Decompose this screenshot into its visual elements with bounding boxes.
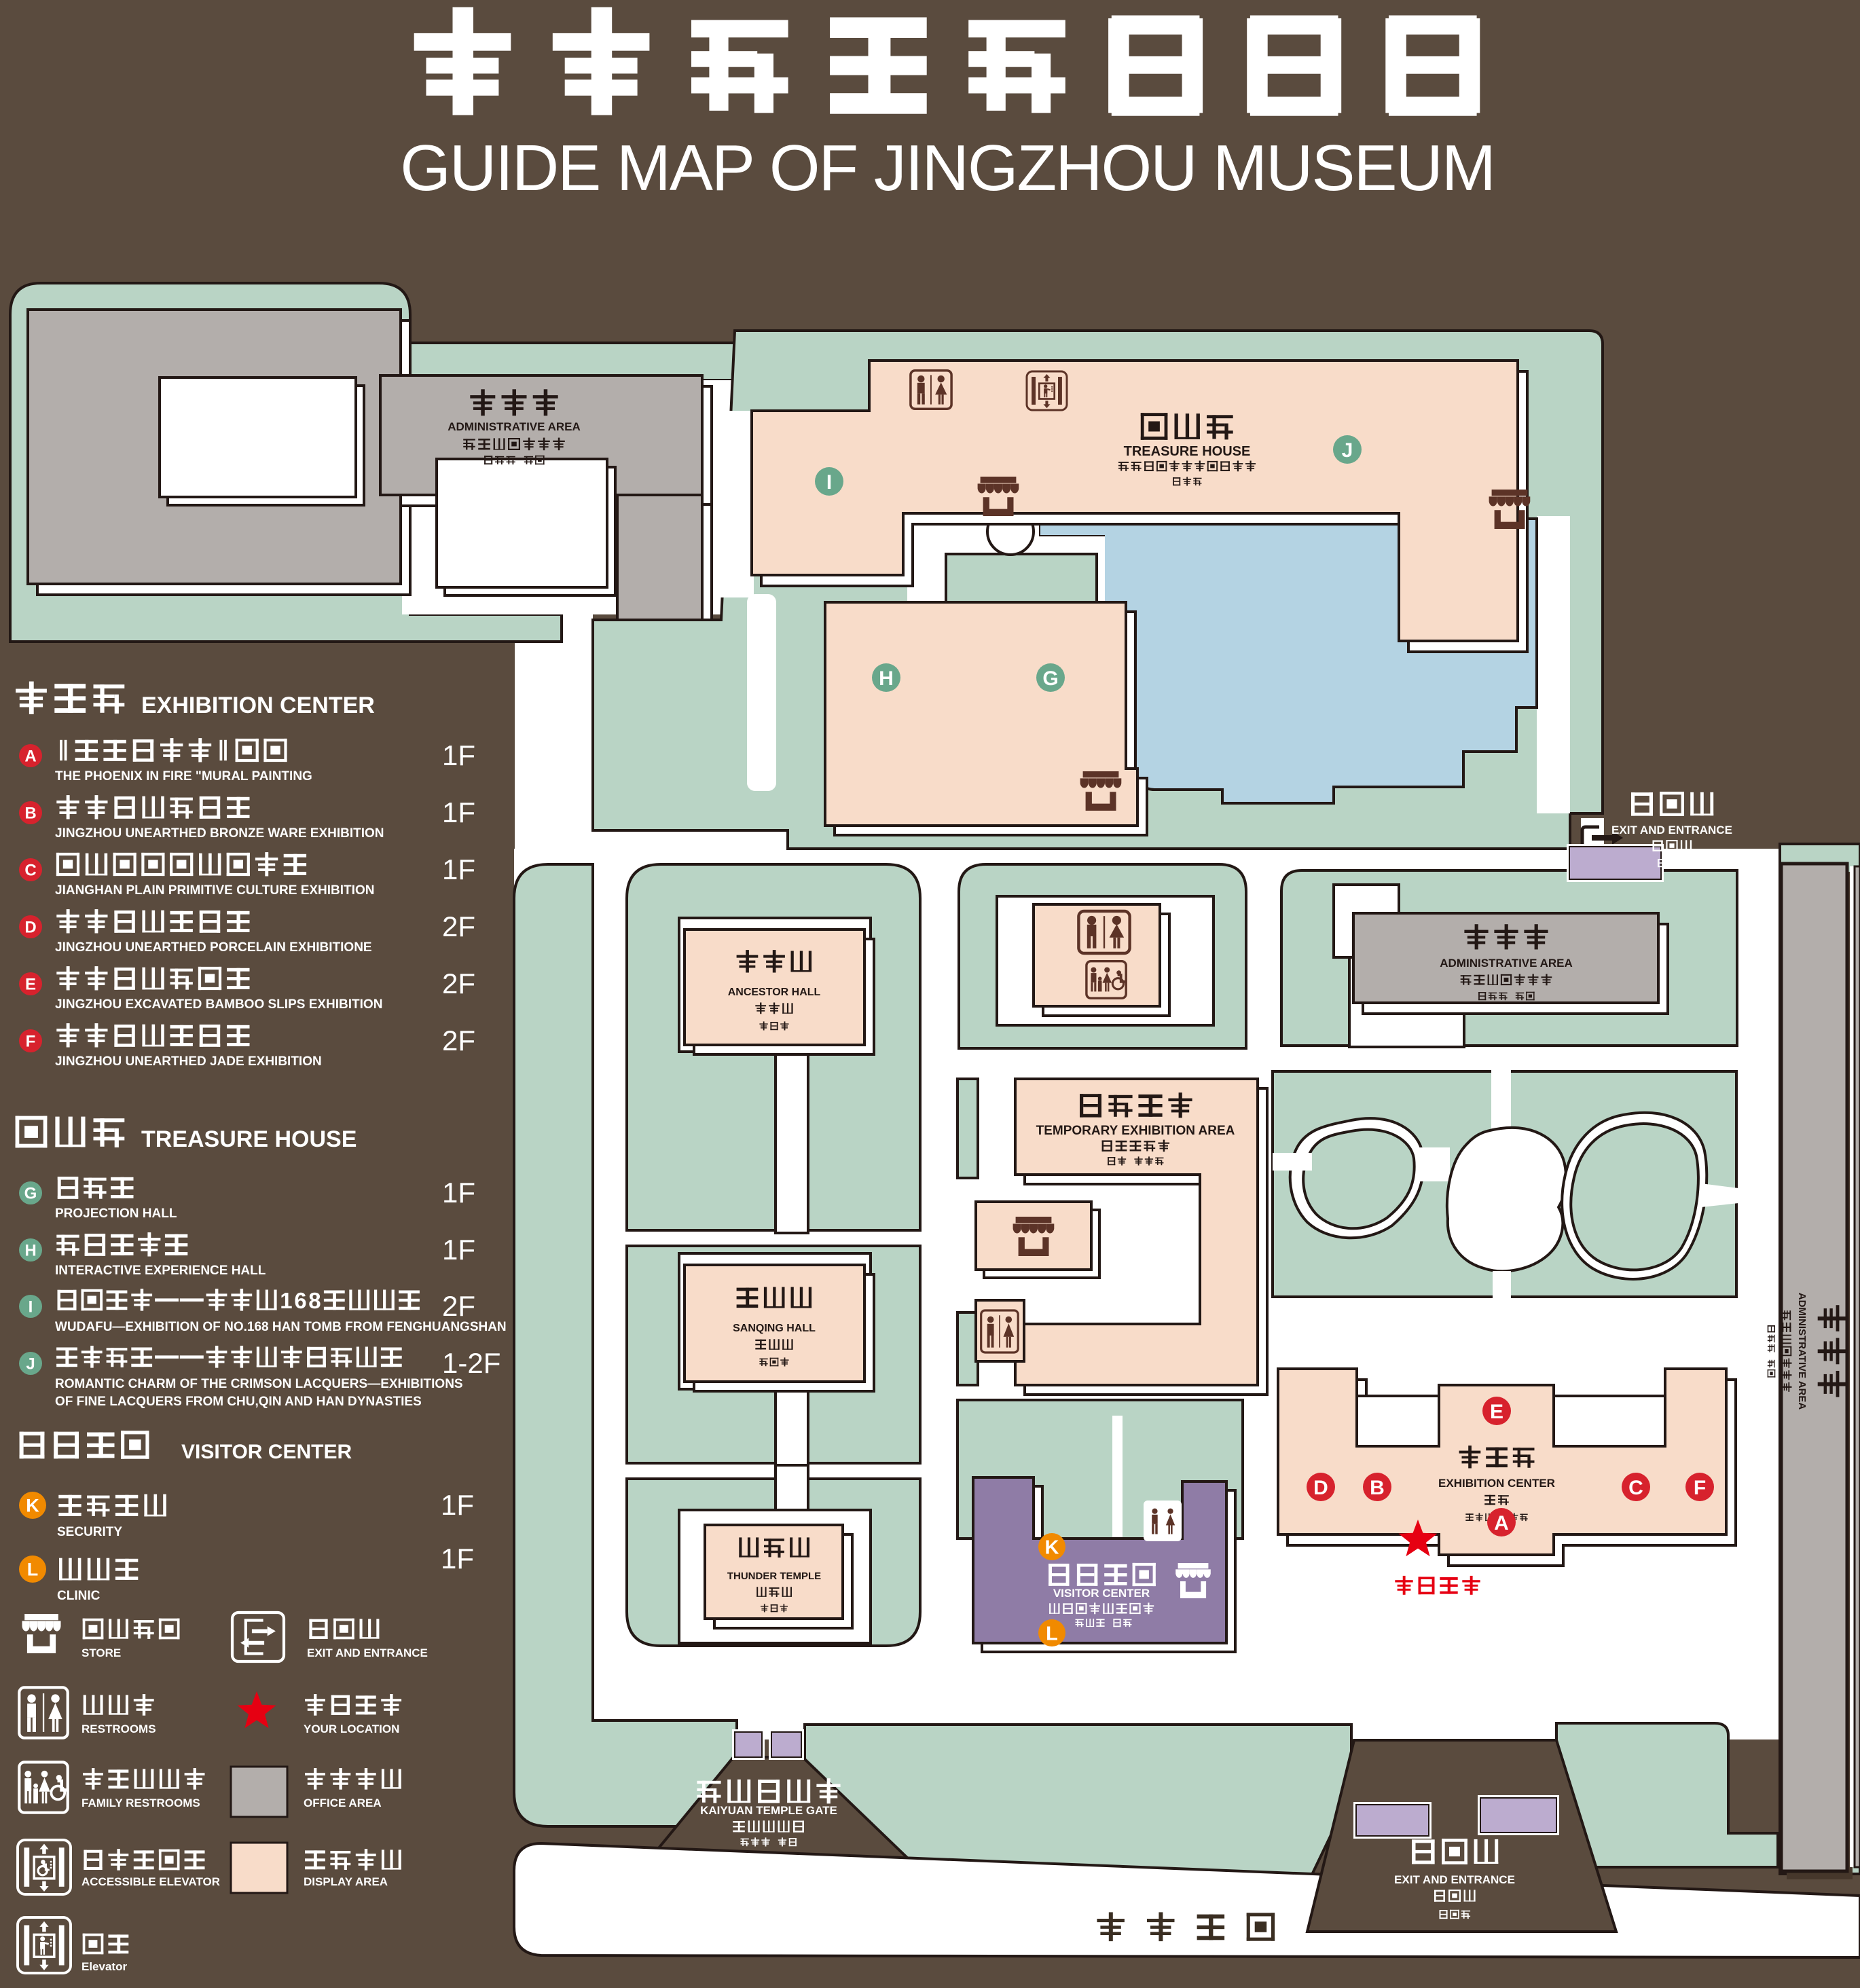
svg-text:ANCESTOR HALL: ANCESTOR HALL [728,987,821,998]
svg-text:1F: 1F [442,1234,475,1266]
svg-text:K: K [26,1496,39,1516]
svg-text:SECURITY: SECURITY [57,1525,122,1539]
svg-text:OF FINE LACQUERS FROM CHU,QIN: OF FINE LACQUERS FROM CHU,QIN AND HAN DY… [55,1395,422,1409]
svg-text:1F: 1F [442,739,475,771]
svg-text:TREASURE HOUSE: TREASURE HOUSE [1124,444,1251,459]
svg-text:2F: 2F [442,1290,475,1322]
svg-text:L: L [27,1560,39,1580]
svg-text:SANQING HALL: SANQING HALL [733,1323,816,1334]
svg-text:2F: 2F [442,968,475,999]
svg-text:ADMINISTRATIVE AREA: ADMINISTRATIVE AREA [448,420,581,433]
svg-text:ACCESSIBLE ELEVATOR: ACCESSIBLE ELEVATOR [81,1875,220,1888]
svg-text:1F: 1F [442,796,475,828]
svg-text:OFFICE AREA: OFFICE AREA [304,1797,382,1809]
svg-text:1F: 1F [442,1177,475,1209]
svg-text:ADMINISTRATIVE AREA: ADMINISTRATIVE AREA [1440,957,1573,970]
svg-text:8: 8 [308,1288,321,1313]
svg-text:JINGZHOU EXCAVATED BAMBOO SLIP: JINGZHOU EXCAVATED BAMBOO SLIPS EXHIBITI… [55,997,382,1012]
svg-text:JINGZHOU UNEARTHED JADE EXHIBI: JINGZHOU UNEARTHED JADE EXHIBITION [55,1054,322,1069]
svg-text:D: D [1313,1477,1328,1499]
svg-text:E: E [25,976,36,994]
svg-text:B: B [1370,1477,1385,1499]
svg-text:C: C [24,862,36,880]
svg-text:1F: 1F [441,1543,474,1575]
svg-text:VISITOR CENTER: VISITOR CENTER [181,1441,352,1463]
svg-text:1F: 1F [441,1489,474,1521]
svg-text:F: F [26,1033,36,1051]
svg-text:E: E [1490,1401,1503,1423]
svg-text:EXIT AND ENTRANCE: EXIT AND ENTRANCE [1394,1873,1515,1886]
svg-text:DISPLAY AREA: DISPLAY AREA [304,1875,388,1888]
svg-text:A: A [1494,1512,1509,1534]
svg-text:I: I [826,471,832,494]
svg-text:JINGZHOU UNEARTHED BRONZE WARE: JINGZHOU UNEARTHED BRONZE WARE EXHIBITIO… [55,826,384,841]
svg-text:J: J [26,1355,35,1374]
svg-text:C: C [1628,1477,1643,1499]
svg-text:G: G [24,1185,37,1203]
svg-text:KAIYUAN TEMPLE GATE: KAIYUAN TEMPLE GATE [700,1804,837,1817]
svg-text:ROMANTIC CHARM OF THE CRIMSON: ROMANTIC CHARM OF THE CRIMSON LACQUERS—E… [55,1377,463,1391]
svg-text:JIANGHAN PLAIN PRIMITIVE CULTU: JIANGHAN PLAIN PRIMITIVE CULTURE EXHIBIT… [55,883,374,898]
svg-text:K: K [1045,1536,1059,1558]
svg-text:L: L [1046,1623,1058,1644]
svg-text:CLINIC: CLINIC [57,1589,101,1603]
svg-text:EXIT AND ENTRANCE: EXIT AND ENTRANCE [1611,824,1732,836]
svg-text:EXIT AND ENTRANCE: EXIT AND ENTRANCE [307,1646,428,1659]
svg-text:TREASURE HOUSE: TREASURE HOUSE [141,1126,357,1152]
svg-text:YOUR LOCATION: YOUR LOCATION [304,1723,399,1735]
svg-text:VISITOR CENTER: VISITOR CENTER [1053,1587,1150,1600]
svg-text:JINGZHOU UNEARTHED PORCELAIN E: JINGZHOU UNEARTHED PORCELAIN EXHIBITIONE [55,940,372,955]
svg-text:INTERACTIVE EXPERIENCE HALL: INTERACTIVE EXPERIENCE HALL [55,1264,266,1278]
svg-text:G: G [1042,667,1058,690]
svg-text:J: J [1342,439,1353,462]
svg-text:PROJECTION HALL: PROJECTION HALL [55,1207,177,1221]
svg-text:Elevator: Elevator [81,1960,127,1973]
svg-text:A: A [24,748,36,766]
svg-text:FAMILY RESTROOMS: FAMILY RESTROOMS [81,1797,200,1809]
svg-text:I: I [29,1298,33,1317]
svg-text:H: H [879,667,894,690]
svg-text:WUDAFU—EXHIBITION OF NO.168 HA: WUDAFU—EXHIBITION OF NO.168 HAN TOMB FRO… [55,1320,507,1334]
svg-text:THUNDER TEMPLE: THUNDER TEMPLE [727,1570,821,1582]
svg-text:D: D [24,919,36,937]
svg-text:TEMPORARY EXHIBITION AREA: TEMPORARY EXHIBITION AREA [1036,1124,1235,1138]
svg-text:STORE: STORE [81,1646,121,1659]
svg-text:2F: 2F [442,1025,475,1056]
svg-text:B: B [24,805,36,823]
svg-text:1F: 1F [442,853,475,885]
svg-text:RESTROOMS: RESTROOMS [81,1723,156,1735]
svg-text:H: H [24,1242,36,1260]
svg-text:2F: 2F [442,910,475,942]
svg-text:GUIDE MAP OF JINGZHOU MUSEUM: GUIDE MAP OF JINGZHOU MUSEUM [400,132,1495,204]
svg-text:ADMINISTRATIVE AREA: ADMINISTRATIVE AREA [1796,1293,1808,1410]
svg-text:EXHIBITION CENTER: EXHIBITION CENTER [1438,1477,1555,1490]
svg-text:EXHIBITION CENTER: EXHIBITION CENTER [141,693,375,718]
svg-text:F: F [1694,1477,1706,1499]
svg-text:6: 6 [294,1288,306,1313]
svg-text:1-2F: 1-2F [442,1347,500,1379]
svg-text:THE PHOENIX IN FIRE "MURAL PAI: THE PHOENIX IN FIRE "MURAL PAINTING [55,769,312,784]
svg-text:1: 1 [280,1288,292,1313]
